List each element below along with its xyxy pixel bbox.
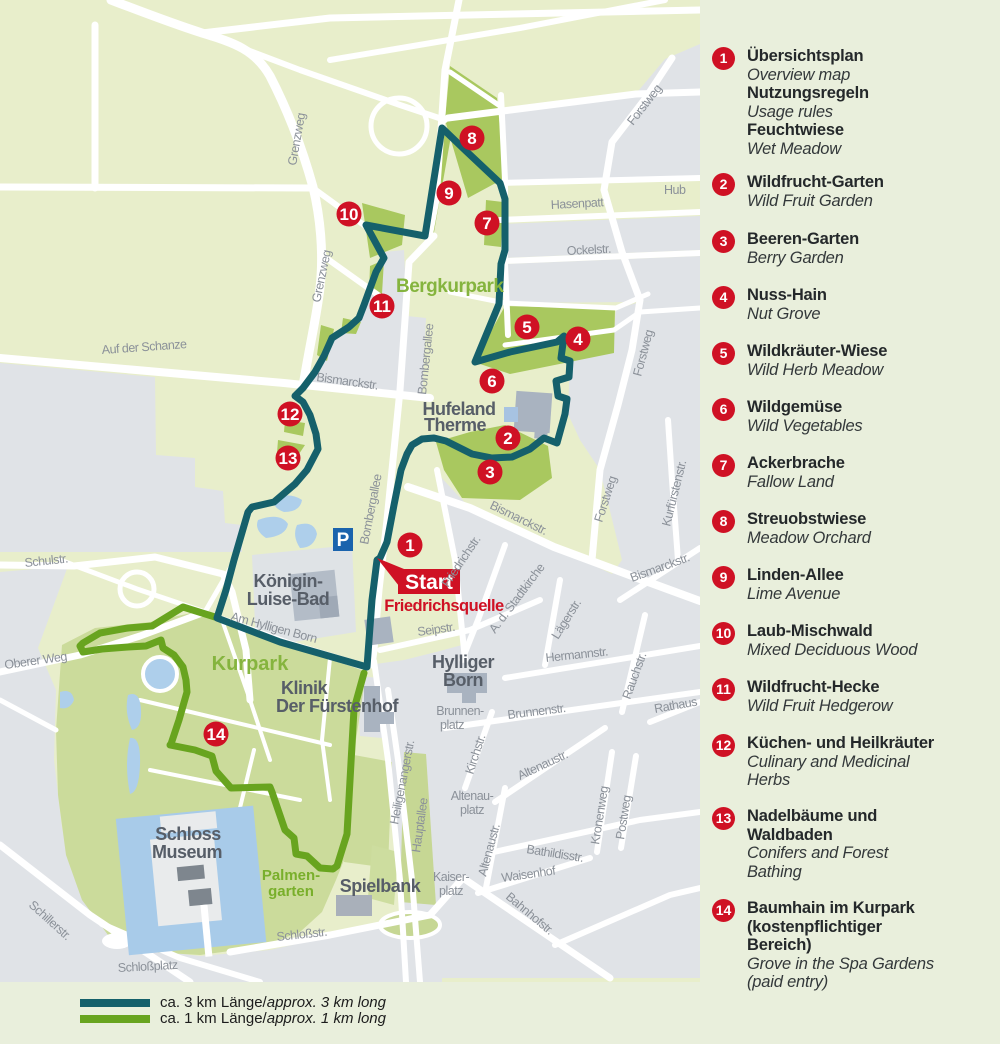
svg-text:Königin-: Königin- [254,571,323,591]
svg-text:Kurpark: Kurpark [212,653,290,675]
svg-text:garten: garten [268,883,314,900]
svg-text:Schloss: Schloss [155,824,221,844]
svg-text:Altenau-: Altenau- [451,789,494,803]
svg-text:Hylliger: Hylliger [432,652,495,672]
svg-text:Klinik: Klinik [281,678,328,698]
svg-text:1: 1 [405,536,414,555]
svg-text:11: 11 [373,297,391,316]
svg-text:4: 4 [573,330,583,349]
svg-text:13: 13 [279,449,298,468]
svg-text:14: 14 [207,725,226,744]
svg-text:Museum: Museum [152,842,222,862]
svg-text:ca. 1 km Länge/approx. 1 km lo: ca. 1 km Länge/approx. 1 km long [160,1010,387,1027]
svg-text:platz: platz [460,803,484,817]
svg-text:Brunnen-: Brunnen- [436,704,484,718]
svg-text:Luise-Bad: Luise-Bad [247,589,330,609]
svg-text:Kaiser-: Kaiser- [433,870,469,884]
svg-text:Hasenpatt: Hasenpatt [550,195,604,212]
svg-text:P: P [337,530,350,551]
svg-text:5: 5 [522,318,531,337]
svg-text:3: 3 [485,463,494,482]
svg-text:Bergkurpark: Bergkurpark [396,276,504,297]
svg-text:Friedrichsquelle: Friedrichsquelle [384,597,504,615]
svg-text:6: 6 [487,372,496,391]
svg-text:Ockelstr.: Ockelstr. [566,242,611,258]
svg-text:Der Fürstenhof: Der Fürstenhof [276,696,400,716]
svg-text:platz: platz [439,884,463,898]
svg-text:Therme: Therme [424,415,487,435]
svg-text:10: 10 [340,205,359,224]
svg-text:12: 12 [281,405,300,424]
svg-text:9: 9 [444,184,453,203]
svg-text:Hub: Hub [664,183,686,197]
svg-text:ca. 3 km Länge/approx. 3 km lo: ca. 3 km Länge/approx. 3 km long [160,994,387,1011]
svg-text:platz: platz [440,718,464,732]
svg-text:Palmen-: Palmen- [262,867,320,884]
svg-text:8: 8 [467,129,476,148]
svg-text:2: 2 [503,429,512,448]
svg-text:7: 7 [482,214,491,233]
svg-text:Born: Born [443,670,483,690]
svg-text:Spielbank: Spielbank [340,876,422,896]
